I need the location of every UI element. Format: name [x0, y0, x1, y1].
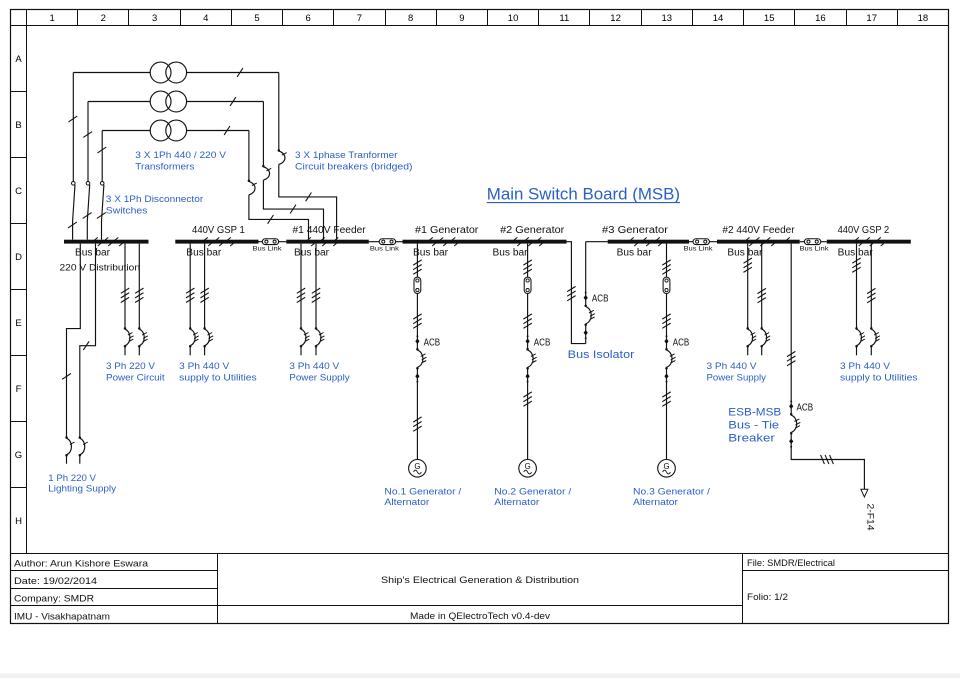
svg-text:Bus bar: Bus bar: [617, 248, 653, 259]
svg-text:Bus Isolator: Bus Isolator: [568, 349, 635, 361]
svg-text:A: A: [15, 54, 22, 65]
svg-text:G: G: [15, 450, 22, 461]
svg-text:15: 15: [764, 13, 775, 24]
svg-text:18: 18: [918, 13, 929, 24]
svg-text:Bus bar: Bus bar: [727, 248, 763, 259]
svg-text:14: 14: [713, 13, 724, 24]
svg-text:Bus Link: Bus Link: [253, 246, 283, 253]
svg-text:1: 1: [49, 13, 54, 24]
svg-text:Bus bar: Bus bar: [838, 248, 874, 259]
svg-text:E: E: [15, 318, 21, 329]
svg-text:supply to Utilities: supply to Utilities: [840, 373, 918, 384]
svg-text:1 Ph 220 V: 1 Ph 220 V: [48, 473, 96, 484]
svg-text:#2 Generator: #2 Generator: [500, 225, 565, 236]
svg-text:9: 9: [459, 13, 464, 24]
svg-text:#1 440V Feeder: #1 440V Feeder: [293, 225, 367, 236]
svg-text:Folio: 1/2: Folio: 1/2: [747, 592, 788, 602]
svg-text:3 X 1phase Tranformer: 3 X 1phase Tranformer: [295, 150, 398, 161]
svg-text:3 X 1Ph Disconnector: 3 X 1Ph Disconnector: [106, 194, 203, 205]
svg-text:ACB: ACB: [592, 294, 609, 305]
svg-text:Made in QElectroTech v0.4-dev: Made in QElectroTech v0.4-dev: [410, 611, 550, 621]
svg-text:10: 10: [508, 13, 519, 24]
svg-text:440V GSP 1: 440V GSP 1: [192, 225, 245, 236]
svg-text:supply to Utilities: supply to Utilities: [179, 373, 257, 384]
svg-text:3 Ph 440 V: 3 Ph 440 V: [289, 361, 340, 372]
svg-text:16: 16: [815, 13, 826, 24]
svg-text:Date: 19/02/2014: Date: 19/02/2014: [14, 576, 97, 586]
svg-text:8: 8: [408, 13, 413, 24]
svg-text:12: 12: [610, 13, 621, 24]
svg-text:ACB: ACB: [424, 337, 441, 348]
svg-text:3 Ph 440 V: 3 Ph 440 V: [840, 361, 891, 372]
svg-text:Main Switch Board (MSB): Main Switch Board (MSB): [487, 185, 680, 204]
svg-text:Company: SMDR: Company: SMDR: [14, 594, 94, 604]
svg-text:Breaker: Breaker: [728, 433, 775, 445]
svg-text:4: 4: [203, 13, 208, 24]
svg-text:Bus bar: Bus bar: [493, 248, 529, 259]
svg-text:11: 11: [559, 13, 569, 24]
svg-text:6: 6: [306, 13, 311, 24]
svg-text:Alternator: Alternator: [633, 497, 678, 508]
svg-text:#2 440V Feeder: #2 440V Feeder: [722, 225, 795, 236]
svg-text:C: C: [15, 186, 22, 197]
svg-text:Author: Arun Kishore Eswara: Author: Arun Kishore Eswara: [14, 559, 149, 569]
svg-text:Bus bar: Bus bar: [294, 248, 330, 259]
svg-text:220 V Distribution: 220 V Distribution: [60, 262, 141, 273]
svg-text:2-F14: 2-F14: [865, 504, 875, 531]
svg-text:Power Supply: Power Supply: [707, 373, 767, 384]
svg-text:ACB: ACB: [673, 337, 690, 348]
svg-text:F: F: [16, 384, 22, 395]
svg-text:Circuit breakers (bridged): Circuit breakers (bridged): [295, 162, 413, 173]
svg-text:Switches: Switches: [106, 206, 148, 217]
svg-text:3 X 1Ph 440 / 220 V: 3 X 1Ph 440 / 220 V: [135, 150, 226, 161]
svg-text:7: 7: [357, 13, 362, 24]
svg-text:13: 13: [662, 13, 673, 24]
svg-text:ESB-MSB: ESB-MSB: [728, 407, 781, 419]
svg-text:5: 5: [254, 13, 259, 24]
svg-text:17: 17: [866, 13, 877, 24]
svg-text:Power Circuit: Power Circuit: [106, 373, 165, 384]
svg-text:3: 3: [152, 13, 157, 24]
svg-text:D: D: [15, 252, 22, 263]
svg-text:H: H: [15, 516, 22, 527]
svg-text:#1 Generator: #1 Generator: [415, 225, 479, 236]
svg-text:ACB: ACB: [534, 337, 551, 348]
svg-text:ACB: ACB: [797, 403, 814, 414]
svg-text:Alternator: Alternator: [384, 497, 429, 508]
svg-text:#3 Generator: #3 Generator: [602, 225, 669, 236]
svg-text:3 Ph 440 V: 3 Ph 440 V: [707, 361, 758, 372]
svg-text:Bus bar: Bus bar: [413, 248, 449, 259]
svg-text:3 Ph 440 V: 3 Ph 440 V: [179, 361, 230, 372]
svg-text:Transformers: Transformers: [135, 162, 194, 173]
svg-text:3 Ph 220 V: 3 Ph 220 V: [106, 361, 156, 372]
svg-text:Alternator: Alternator: [494, 497, 539, 508]
svg-text:Ship's Electrical Generation &: Ship's Electrical Generation & Distribut…: [381, 575, 579, 585]
svg-text:Bus Link: Bus Link: [800, 246, 830, 253]
svg-text:Lighting Supply: Lighting Supply: [48, 483, 116, 494]
svg-text:Bus Link: Bus Link: [370, 246, 400, 253]
svg-text:File: SMDR/Electrical: File: SMDR/Electrical: [747, 558, 835, 568]
svg-text:IMU - Visakhapatnam: IMU - Visakhapatnam: [14, 612, 110, 622]
svg-text:Bus - Tie: Bus - Tie: [728, 420, 779, 432]
svg-text:2: 2: [101, 13, 106, 24]
svg-text:B: B: [15, 120, 21, 131]
svg-text:Power Supply: Power Supply: [289, 373, 350, 384]
svg-text:440V GSP 2: 440V GSP 2: [838, 225, 890, 236]
svg-text:Bus Link: Bus Link: [684, 246, 714, 253]
